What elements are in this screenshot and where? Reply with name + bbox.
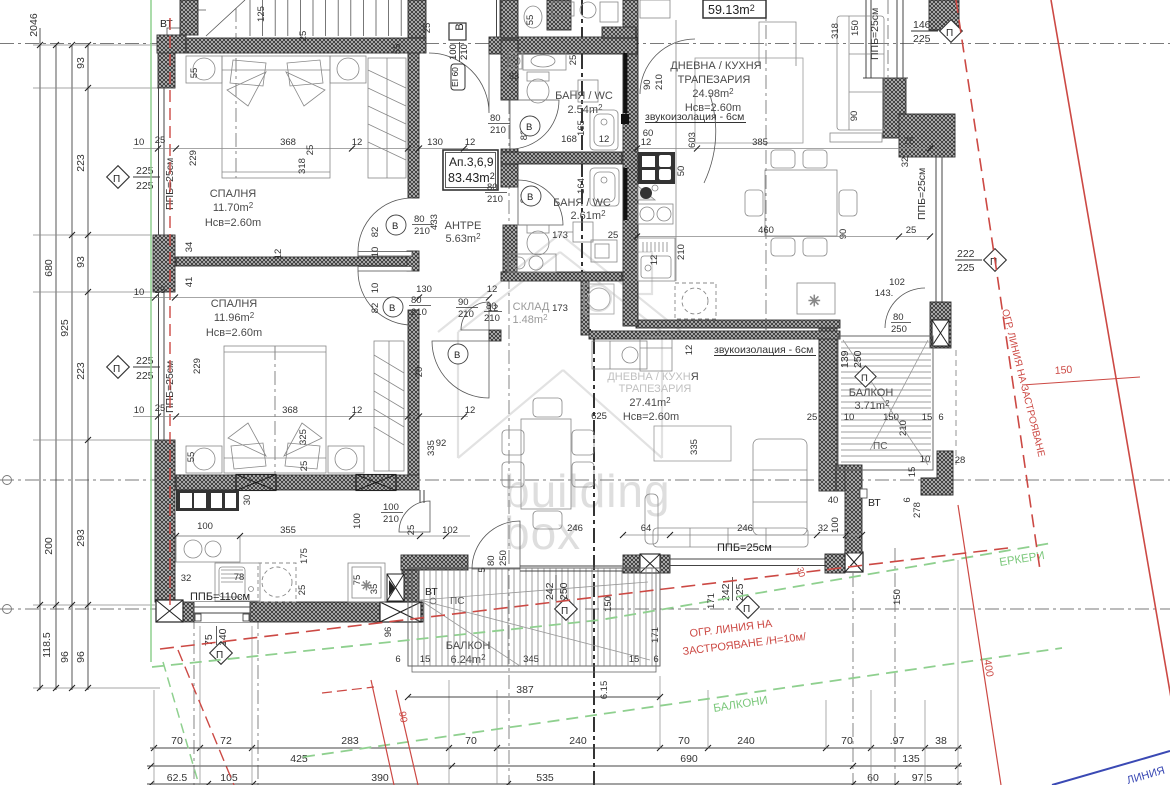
svg-text:41: 41	[184, 277, 195, 288]
svg-text:30: 30	[242, 495, 253, 506]
svg-text:164: 164	[576, 178, 587, 194]
svg-text:АНТРЕ: АНТРЕ	[445, 220, 482, 232]
svg-text:25: 25	[906, 225, 917, 236]
svg-text:223: 223	[75, 362, 87, 380]
svg-text:135: 135	[902, 753, 920, 765]
svg-text:20: 20	[414, 367, 425, 378]
svg-text:318: 318	[297, 158, 308, 174]
svg-text:12: 12	[684, 345, 695, 356]
svg-text:80: 80	[490, 113, 501, 124]
svg-text:5: 5	[477, 567, 488, 572]
svg-text:10: 10	[134, 137, 145, 148]
svg-text:355: 355	[280, 525, 296, 536]
svg-text:15: 15	[420, 654, 431, 665]
svg-text:6: 6	[938, 412, 943, 423]
svg-text:25: 25	[305, 145, 316, 156]
svg-text:80: 80	[486, 301, 497, 312]
svg-text:173: 173	[552, 230, 568, 241]
svg-text:75: 75	[904, 136, 915, 147]
svg-text:150: 150	[883, 412, 899, 423]
svg-text:80: 80	[486, 555, 497, 566]
svg-text:B: B	[454, 350, 460, 361]
svg-text:143.: 143.	[875, 288, 894, 299]
svg-text:210: 210	[490, 125, 506, 136]
svg-text:32: 32	[900, 157, 911, 168]
svg-text:100: 100	[830, 517, 841, 533]
svg-text:460: 460	[758, 225, 774, 236]
svg-text:60: 60	[867, 772, 879, 784]
svg-text:690: 690	[680, 753, 698, 765]
svg-text:59.13m2: 59.13m2	[708, 3, 755, 17]
svg-text:80: 80	[487, 182, 498, 193]
svg-text:165: 165	[576, 120, 587, 136]
svg-text:210: 210	[459, 44, 470, 60]
svg-text:210: 210	[411, 307, 427, 318]
svg-text:293: 293	[75, 529, 87, 547]
svg-text:210: 210	[676, 244, 687, 260]
svg-text:680: 680	[43, 259, 55, 277]
svg-text:12: 12	[273, 249, 284, 260]
svg-text:П: П	[113, 174, 120, 185]
svg-text:335: 335	[689, 439, 700, 455]
svg-text:ТРАПЕЗАРИЯ: ТРАПЕЗАРИЯ	[619, 383, 692, 395]
svg-text:П: П	[561, 606, 568, 617]
svg-text:12: 12	[487, 284, 498, 295]
svg-text:15: 15	[907, 467, 918, 478]
svg-text:12: 12	[352, 405, 363, 416]
svg-text:246: 246	[737, 523, 753, 534]
svg-text:ППБ=25см: ППБ=25см	[717, 542, 772, 554]
svg-text:150: 150	[603, 596, 614, 612]
svg-text:118.5: 118.5	[41, 632, 53, 658]
svg-text:12: 12	[599, 134, 610, 145]
svg-text:90: 90	[642, 79, 653, 90]
svg-text:173: 173	[552, 303, 568, 314]
svg-text:210: 210	[654, 74, 665, 90]
svg-text:225: 225	[734, 583, 746, 601]
svg-text:11.70m2: 11.70m2	[213, 201, 254, 214]
svg-text:325: 325	[298, 429, 309, 445]
svg-text:210: 210	[484, 313, 500, 324]
svg-text:240: 240	[737, 735, 755, 747]
svg-text:1.48m2: 1.48m2	[512, 313, 548, 326]
svg-text:БАНЯ / WC: БАНЯ / WC	[555, 90, 613, 102]
svg-text:2.54m2: 2.54m2	[567, 103, 603, 116]
svg-text:ППБ=25см: ППБ=25см	[869, 8, 881, 60]
svg-text:П: П	[743, 604, 750, 615]
svg-text:П: П	[113, 364, 120, 375]
svg-text:229: 229	[188, 150, 199, 166]
svg-text:92: 92	[436, 438, 447, 449]
svg-text:250: 250	[558, 582, 570, 600]
svg-text:283: 283	[341, 735, 359, 747]
svg-text:28: 28	[955, 455, 966, 466]
svg-text:ВТ: ВТ	[425, 586, 438, 598]
svg-text:10: 10	[370, 283, 381, 294]
svg-text:35: 35	[369, 584, 380, 595]
svg-text:40: 40	[828, 495, 839, 506]
svg-text:6.15: 6.15	[599, 681, 610, 700]
svg-text:139: 139	[839, 350, 851, 368]
svg-text:5.63m2: 5.63m2	[445, 232, 481, 245]
svg-text:.97: .97	[890, 735, 905, 747]
svg-text:6.24m2: 6.24m2	[450, 653, 486, 666]
svg-text:B: B	[526, 122, 532, 133]
svg-text:34: 34	[184, 242, 195, 253]
svg-text:140: 140	[217, 628, 229, 646]
svg-text:10: 10	[920, 454, 931, 465]
svg-text:222: 222	[957, 248, 975, 260]
svg-text:6: 6	[902, 497, 913, 502]
svg-text:11.96m2: 11.96m2	[214, 311, 255, 324]
svg-text:25: 25	[422, 23, 433, 34]
svg-text:БАЛКОН: БАЛКОН	[446, 640, 491, 652]
svg-text:335: 335	[426, 440, 437, 456]
svg-text:70: 70	[171, 735, 183, 747]
svg-text:225: 225	[913, 33, 931, 45]
svg-text:П: П	[861, 373, 868, 384]
svg-text:БАЛКОН: БАЛКОН	[849, 387, 894, 399]
svg-text:318: 318	[830, 23, 841, 39]
svg-text:ППБ=25см: ППБ=25см	[916, 168, 928, 220]
svg-text:100: 100	[448, 44, 459, 60]
svg-text:82: 82	[370, 227, 381, 238]
svg-text:Ап.3,6,9: Ап.3,6,9	[449, 155, 494, 169]
svg-text:55: 55	[525, 15, 536, 26]
svg-text:278: 278	[912, 502, 923, 518]
svg-text:10: 10	[134, 405, 145, 416]
svg-text:72: 72	[220, 735, 232, 747]
svg-text:70: 70	[465, 735, 477, 747]
svg-text:385: 385	[752, 137, 768, 148]
svg-text:25: 25	[297, 585, 308, 596]
svg-text:62.5: 62.5	[167, 772, 188, 784]
svg-text:625: 625	[591, 411, 607, 422]
svg-text:12: 12	[649, 255, 660, 266]
svg-text:38: 38	[935, 735, 947, 747]
svg-text:6: 6	[395, 654, 400, 665]
svg-text:25: 25	[299, 461, 310, 472]
svg-text:425: 425	[290, 753, 308, 765]
svg-text:B: B	[389, 303, 395, 314]
svg-text:150: 150	[1054, 364, 1072, 377]
svg-text:звукоизолация - 6см: звукоизолация - 6см	[714, 344, 813, 356]
svg-text:32: 32	[818, 523, 829, 534]
svg-text:ВТ: ВТ	[160, 18, 173, 30]
svg-text:150: 150	[850, 20, 861, 36]
svg-text:250: 250	[852, 350, 864, 368]
svg-text:10: 10	[844, 412, 855, 423]
svg-text:146: 146	[913, 19, 931, 31]
svg-text:СКЛАД: СКЛАД	[513, 301, 550, 313]
svg-text:130: 130	[416, 284, 432, 295]
svg-text:ДНЕВНА / КУХНЯ: ДНЕВНА / КУХНЯ	[670, 60, 761, 72]
svg-text:70: 70	[841, 735, 853, 747]
svg-text:B: B	[392, 221, 398, 232]
svg-text:25: 25	[155, 135, 166, 146]
svg-text:93: 93	[75, 256, 87, 268]
svg-text:П: П	[946, 28, 953, 39]
svg-text:150: 150	[892, 589, 903, 605]
svg-text:223: 223	[75, 154, 87, 172]
svg-text:93: 93	[509, 71, 520, 82]
svg-text:EI 60: EI 60	[450, 67, 460, 87]
svg-text:ПС: ПС	[450, 596, 464, 607]
svg-text:27.41m2: 27.41m2	[629, 396, 671, 409]
svg-text:СПАЛНЯ: СПАЛНЯ	[210, 188, 257, 200]
svg-text:25: 25	[568, 55, 579, 66]
svg-text:25: 25	[298, 31, 309, 42]
svg-text:15: 15	[629, 654, 640, 665]
svg-text:60: 60	[643, 128, 654, 139]
svg-text:168: 168	[561, 134, 577, 145]
svg-text:246: 246	[567, 523, 583, 534]
svg-text:93: 93	[75, 57, 87, 69]
svg-text:10: 10	[134, 287, 145, 298]
svg-text:15: 15	[922, 412, 933, 423]
svg-text:125: 125	[256, 6, 267, 22]
svg-text:210: 210	[383, 514, 399, 525]
svg-text:12: 12	[465, 137, 476, 148]
svg-text:100: 100	[197, 521, 213, 532]
svg-text:12: 12	[352, 137, 363, 148]
svg-text:Нсв=2.60m: Нсв=2.60m	[205, 217, 261, 229]
svg-text:ДНЕВНА / КУХНЯ: ДНЕВНА / КУХНЯ	[607, 371, 698, 383]
svg-text:130: 130	[427, 137, 443, 148]
svg-text:25: 25	[608, 230, 619, 241]
svg-text:10: 10	[370, 247, 381, 258]
svg-text:80: 80	[893, 312, 904, 323]
svg-text:25: 25	[155, 403, 166, 414]
svg-text:225: 225	[957, 262, 975, 274]
svg-text:75: 75	[352, 575, 363, 586]
svg-text:100: 100	[352, 513, 363, 529]
svg-text:171: 171	[650, 627, 661, 643]
svg-text:210: 210	[458, 309, 474, 320]
svg-text:102: 102	[889, 277, 905, 288]
svg-text:345: 345	[523, 654, 539, 665]
svg-text:2046: 2046	[28, 13, 40, 37]
svg-text:ППБ=110см: ППБ=110см	[190, 591, 250, 603]
svg-text:звукоизолация - 6см: звукоизолация - 6см	[645, 111, 744, 123]
svg-text:90: 90	[838, 229, 849, 240]
svg-text:55: 55	[186, 452, 197, 463]
svg-text:78: 78	[234, 572, 245, 583]
svg-text:96: 96	[75, 651, 87, 663]
svg-text:64: 64	[641, 523, 652, 534]
svg-text:102: 102	[442, 525, 458, 536]
svg-text:96: 96	[383, 627, 394, 638]
svg-text:2.61m2: 2.61m2	[570, 209, 606, 222]
svg-text:240: 240	[569, 735, 587, 747]
svg-text:СПАЛНЯ: СПАЛНЯ	[211, 298, 258, 310]
svg-text:368: 368	[280, 137, 296, 148]
svg-text:603: 603	[687, 132, 698, 148]
svg-text:ТРАПЕЗАРИЯ: ТРАПЕЗАРИЯ	[678, 74, 751, 86]
svg-text:70: 70	[678, 735, 690, 747]
svg-text:90: 90	[458, 297, 469, 308]
svg-text:ПС: ПС	[873, 441, 887, 452]
svg-text:387: 387	[516, 684, 534, 696]
svg-text:B: B	[454, 23, 466, 30]
svg-text:80: 80	[411, 295, 422, 306]
svg-text:96: 96	[59, 651, 71, 663]
svg-text:210: 210	[898, 420, 909, 436]
svg-text:90: 90	[849, 111, 860, 122]
svg-text:25: 25	[155, 285, 166, 296]
svg-text:25: 25	[807, 412, 818, 423]
svg-text:82: 82	[370, 303, 381, 314]
svg-text:80: 80	[414, 214, 425, 225]
svg-text:171: 171	[706, 593, 717, 609]
svg-text:12: 12	[465, 405, 476, 416]
svg-text:✳: ✳	[808, 293, 821, 310]
svg-text:25: 25	[406, 525, 417, 536]
svg-text:БАНЯ / WC: БАНЯ / WC	[553, 197, 611, 209]
svg-text:242: 242	[544, 582, 556, 600]
svg-text:3.71m2: 3.71m2	[854, 399, 890, 412]
svg-text:433: 433	[429, 214, 440, 230]
svg-text:55: 55	[392, 44, 403, 55]
svg-text:97.5: 97.5	[912, 772, 933, 784]
svg-text:925: 925	[59, 319, 71, 337]
svg-text:24.98m2: 24.98m2	[692, 87, 734, 100]
svg-text:Нсв=2.60m: Нсв=2.60m	[206, 327, 262, 339]
svg-text:50: 50	[676, 166, 687, 177]
svg-text:250: 250	[498, 550, 509, 566]
svg-text:100: 100	[383, 502, 399, 513]
svg-text:55: 55	[189, 68, 200, 79]
svg-text:210: 210	[487, 194, 503, 205]
svg-text:175: 175	[299, 548, 310, 564]
svg-text:ВТ: ВТ	[868, 497, 881, 509]
svg-text:250: 250	[891, 324, 907, 335]
svg-text:Нсв=2.60m: Нсв=2.60m	[623, 411, 679, 423]
svg-text:6: 6	[653, 654, 658, 665]
svg-text:368: 368	[282, 405, 298, 416]
svg-text:390: 390	[371, 772, 389, 784]
svg-text:200: 200	[43, 537, 55, 555]
svg-text:229: 229	[192, 358, 203, 374]
svg-text:B: B	[527, 192, 533, 203]
svg-text:32: 32	[181, 573, 192, 584]
svg-text:535: 535	[536, 772, 554, 784]
svg-text:210: 210	[414, 226, 430, 237]
